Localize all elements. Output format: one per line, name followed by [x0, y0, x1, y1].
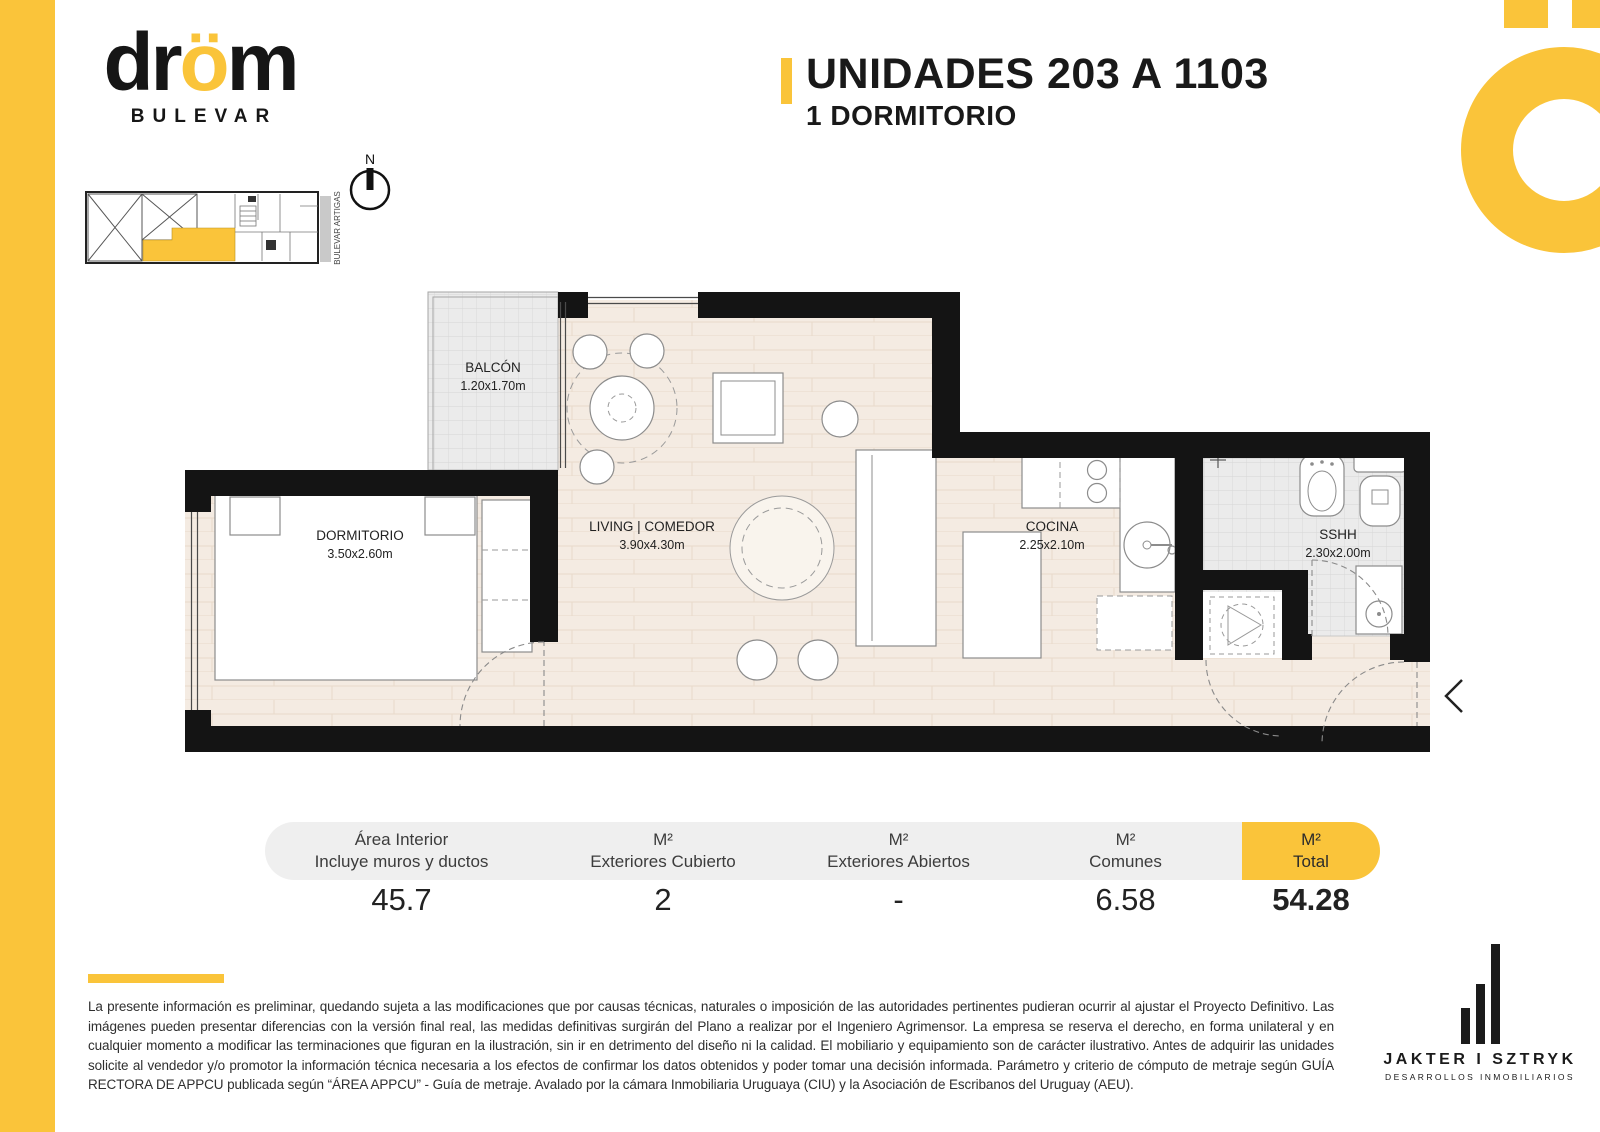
- pouf: [798, 640, 838, 680]
- developer-name: JAKTER I SZTRYK: [1380, 1051, 1580, 1069]
- areas-col-ext-abiertos-line2: Exteriores Abiertos: [827, 851, 970, 873]
- disclaimer-accent-rule: [88, 974, 224, 983]
- north-label: N: [365, 151, 375, 167]
- wardrobe: [482, 500, 532, 652]
- areas-col-ext-abiertos: M² Exteriores Abiertos: [788, 822, 1009, 880]
- brochure-page: { "page": { "accent": "#FAC43A", "wall_c…: [0, 0, 1600, 1132]
- developer-logo: JAKTER I SZTRYK DESARROLLOS INMOBILIARIO…: [1380, 944, 1580, 1082]
- value-comunes: 6.58: [1009, 882, 1242, 918]
- value-total: 54.28: [1242, 882, 1380, 918]
- keyplan-street-strip: [320, 196, 331, 262]
- areas-col-interior-line2: Incluye muros y ductos: [315, 851, 489, 873]
- tv-unit: [713, 373, 783, 443]
- page-title: UNIDADES 203 A 1103: [806, 50, 1269, 99]
- areas-col-comunes: M² Comunes: [1009, 822, 1242, 880]
- areas-col-ext-cubierto: M² Exteriores Cubierto: [538, 822, 788, 880]
- sofa: [856, 450, 936, 646]
- left-accent-bar: [0, 0, 55, 1132]
- developer-tagline: DESARROLLOS INMOBILIARIOS: [1380, 1072, 1580, 1082]
- room-label-sshh: SSHH: [1319, 527, 1357, 542]
- room-dims-sshh: 2.30x2.00m: [1305, 546, 1370, 560]
- areas-col-total-line1: M²: [1301, 829, 1321, 851]
- areas-table-values: 45.7 2 - 6.58 54.28: [265, 882, 1380, 918]
- bed: [215, 492, 477, 680]
- areas-col-ext-abiertos-line1: M²: [889, 829, 909, 851]
- areas-col-interior: Área Interior Incluye muros y ductos: [265, 822, 538, 880]
- floorplan: BALCÓN 1.20x1.70m DORMITORIO 3.50x2.60m …: [185, 282, 1485, 764]
- logo-m: m: [227, 17, 297, 108]
- bidet: [1300, 454, 1344, 516]
- north-arrow-icon: N: [351, 151, 389, 209]
- areas-col-total-line2: Total: [1293, 851, 1329, 873]
- value-ext-cubierto: 2: [538, 882, 788, 918]
- page-subtitle: 1 DORMITORIO: [806, 100, 1017, 132]
- areas-table-header: Área Interior Incluye muros y ductos M² …: [265, 822, 1380, 880]
- brand-logo: dröm BULEVAR: [80, 20, 320, 128]
- room-dims-living: 3.90x4.30m: [619, 538, 684, 552]
- areas-col-comunes-line2: Comunes: [1089, 851, 1162, 873]
- room-dims-cocina: 2.25x2.10m: [1019, 538, 1084, 552]
- logo-dr: dr: [103, 17, 179, 108]
- logo-o-yellow: ö: [179, 17, 226, 108]
- disclaimer-text: La presente información es preliminar, q…: [88, 997, 1334, 1095]
- chevron-left-icon[interactable]: [1446, 680, 1462, 712]
- room-dims-dormitorio: 3.50x2.60m: [327, 547, 392, 561]
- room-label-balcon: BALCÓN: [465, 360, 521, 375]
- brand-logo-wordmark: dröm: [80, 20, 320, 106]
- room-label-living: LIVING | COMEDOR: [589, 519, 715, 534]
- rug: [730, 496, 834, 600]
- room-label-dormitorio: DORMITORIO: [316, 528, 404, 543]
- keyplan: BULEVAR ARTIGAS N: [80, 145, 400, 277]
- room-label-cocina: COCINA: [1026, 519, 1079, 534]
- areas-col-ext-cubierto-line1: M²: [653, 829, 673, 851]
- laundry-closet: [1203, 592, 1282, 658]
- areas-col-interior-line1: Área Interior: [355, 829, 449, 851]
- value-ext-abiertos: -: [788, 882, 1009, 918]
- pouf: [737, 640, 777, 680]
- developer-bars-icon: [1380, 944, 1580, 1044]
- areas-col-total: M² Total: [1242, 822, 1380, 880]
- brand-logo-subtitle: BULEVAR: [80, 106, 320, 128]
- brand-o-decoration: [1440, 0, 1600, 280]
- keyplan-street-label: BULEVAR ARTIGAS: [333, 191, 342, 265]
- pouf: [822, 401, 858, 437]
- room-dims-balcon: 1.20x1.70m: [460, 379, 525, 393]
- title-accent-bar: [781, 58, 792, 104]
- value-area-interior: 45.7: [265, 882, 538, 918]
- areas-col-comunes-line1: M²: [1116, 829, 1136, 851]
- areas-header-pill: Área Interior Incluye muros y ductos M² …: [265, 822, 1242, 880]
- areas-col-ext-cubierto-line2: Exteriores Cubierto: [590, 851, 736, 873]
- toilet: [1354, 452, 1406, 526]
